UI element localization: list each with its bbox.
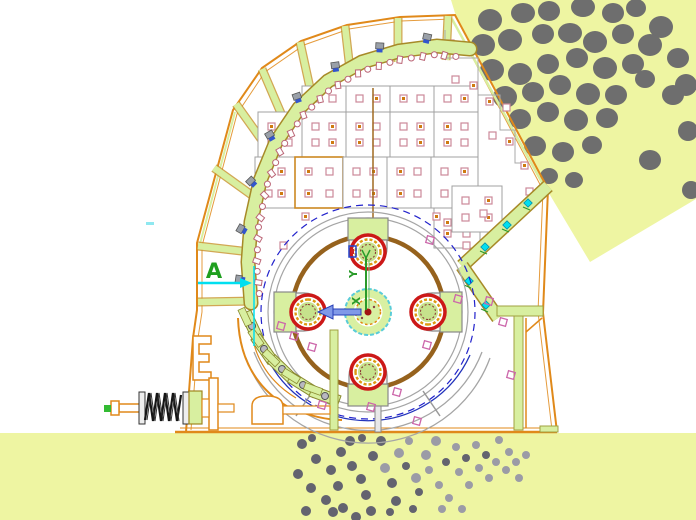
- discharge-particle: [326, 465, 336, 475]
- feed-rock: [532, 24, 554, 44]
- band-scallop: [345, 76, 351, 82]
- discharge-particle: [306, 483, 316, 493]
- discharge-particle: [431, 436, 441, 446]
- discharge-particle: [421, 450, 431, 460]
- panel-bolt-square: [353, 190, 360, 197]
- discharge-particle: [472, 441, 480, 449]
- discharge-particle: [512, 458, 520, 466]
- panel-bolt-square: [400, 123, 407, 130]
- discharge-particle: [297, 439, 307, 449]
- discharge-particle: [358, 434, 366, 442]
- band-scallop: [408, 55, 414, 61]
- band-scallop: [259, 203, 265, 209]
- feed-rock: [635, 70, 655, 88]
- discharge-particle: [321, 495, 331, 505]
- panel-bolt-square: [441, 168, 448, 175]
- hammer-assembly: [348, 218, 388, 269]
- panel-bolt-square: [461, 139, 468, 146]
- discharge-particle: [386, 508, 394, 516]
- feed-rock: [538, 1, 560, 21]
- band-notch: [254, 279, 262, 285]
- panel-bolt-square: [326, 168, 333, 175]
- band-notch: [397, 56, 403, 64]
- liner-panel: [452, 186, 502, 232]
- discharge-particle: [482, 451, 490, 459]
- discharge-particle: [301, 506, 311, 516]
- discharge-particle: [435, 481, 443, 489]
- liner-panel: [434, 86, 478, 112]
- feed-rock: [508, 63, 532, 85]
- panel-bolt-square: [312, 139, 319, 146]
- discharge-particle: [438, 505, 446, 513]
- band-scallop: [264, 181, 270, 187]
- discharge-particle: [328, 507, 338, 517]
- discharge-particle: [356, 474, 366, 484]
- feed-rock: [593, 57, 617, 79]
- section-marker-label: A: [206, 259, 223, 283]
- feed-rock: [511, 3, 535, 23]
- discharge-particle: [376, 436, 386, 446]
- feed-rock: [537, 102, 559, 122]
- discharge-particle: [502, 466, 510, 474]
- discharge-particle: [415, 488, 423, 496]
- discharge-particle: [445, 494, 453, 502]
- feed-rock: [667, 48, 689, 68]
- discharge-particle: [366, 506, 376, 516]
- band-scallop: [294, 121, 300, 127]
- panel-bolt-square: [400, 139, 407, 146]
- discharge-particle: [425, 466, 433, 474]
- panel-bolt-square: [353, 168, 360, 175]
- left-bracket: [193, 336, 211, 380]
- discharge-particle: [409, 505, 417, 513]
- feed-rock: [498, 29, 522, 51]
- discharge-particle: [391, 496, 401, 506]
- band-notch: [317, 95, 323, 103]
- feed-rock: [583, 31, 607, 53]
- liner-panel: [346, 112, 390, 157]
- feed-rock: [549, 75, 571, 95]
- discharge-particle: [368, 451, 378, 461]
- discharge-particle: [515, 474, 523, 482]
- band-notch: [335, 81, 341, 89]
- discharge-particle: [492, 458, 500, 466]
- liner-panel: [295, 157, 343, 208]
- liner-panel: [434, 112, 478, 157]
- bolt-square: [489, 132, 496, 139]
- discharge-particle: [387, 478, 397, 488]
- band-scallop: [309, 104, 315, 110]
- discharge-particle: [338, 503, 348, 513]
- panel-bolt-square: [441, 190, 448, 197]
- band-notch: [376, 62, 381, 69]
- discharge-particle: [411, 473, 421, 483]
- discharge-particle: [380, 463, 390, 473]
- panel-bolt-square: [312, 123, 319, 130]
- bolt-square: [463, 242, 470, 249]
- discharge-particle: [311, 454, 321, 464]
- band-scallop: [254, 247, 260, 253]
- discharge-particle: [336, 447, 346, 457]
- band-scallop: [282, 140, 288, 146]
- liner-panel: [343, 157, 387, 208]
- feed-rock: [638, 34, 662, 56]
- discharge-particle: [465, 481, 473, 489]
- discharge-particle: [452, 443, 460, 451]
- discharge-particle: [458, 505, 466, 513]
- bolt-square: [503, 104, 510, 111]
- feed-rock: [566, 48, 588, 68]
- feed-rock: [565, 172, 583, 188]
- feed-rock: [552, 142, 574, 162]
- feed-rock: [478, 9, 502, 31]
- panel-bolt-square: [462, 197, 469, 204]
- discharge-particle: [522, 451, 530, 459]
- discharge-particle: [308, 434, 316, 442]
- bolt-square: [452, 76, 459, 83]
- discharge-particle: [505, 448, 513, 456]
- feed-rock: [558, 23, 582, 43]
- discharge-particle: [495, 436, 503, 444]
- panel-bolt-square: [356, 95, 363, 102]
- spring-rod-left: [119, 404, 141, 412]
- feed-rock: [582, 136, 602, 154]
- feed-rock: [537, 54, 559, 74]
- panel-bolt-square: [444, 95, 451, 102]
- band-scallop: [273, 160, 279, 166]
- panel-bolt-square: [373, 139, 380, 146]
- panel-bolt-square: [462, 214, 469, 221]
- band-notch: [355, 70, 360, 77]
- panel-bolt-square: [417, 95, 424, 102]
- feed-rock: [639, 150, 661, 170]
- discharge-particle: [293, 469, 303, 479]
- feed-rock: [602, 3, 624, 23]
- hammer-assembly: [348, 355, 388, 406]
- panel-bolt-square: [414, 190, 421, 197]
- feed-rock: [524, 136, 546, 156]
- feed-rock: [605, 85, 627, 105]
- discharge-particle: [462, 454, 470, 462]
- panel-bolt-square: [373, 123, 380, 130]
- feed-rock: [522, 82, 544, 102]
- band-scallop: [431, 52, 437, 58]
- band-scallop: [256, 291, 262, 297]
- discharge-particle: [475, 464, 483, 472]
- panel-bolt-square: [461, 123, 468, 130]
- feed-rock: [612, 24, 634, 44]
- band-scallop: [255, 224, 261, 230]
- band-scallop: [453, 53, 459, 59]
- rod-green-tip: [104, 405, 111, 412]
- axis-y-label: Y: [347, 269, 360, 279]
- discharge-particle: [394, 448, 404, 458]
- feed-rock: [596, 108, 618, 128]
- discharge-particle: [485, 474, 493, 482]
- discharge-particle: [361, 490, 371, 500]
- liner-panel: [302, 112, 346, 157]
- tension-rod-clevis: [252, 396, 283, 424]
- band-scallop: [387, 59, 393, 65]
- bolt-square: [480, 210, 487, 217]
- band-scallop: [254, 268, 260, 274]
- discharge-particle: [402, 462, 410, 470]
- crusher-section-drawing: Y X A: [0, 0, 696, 520]
- axis-x-label: X: [350, 296, 363, 305]
- band-notch: [420, 52, 426, 60]
- discharge-particle: [405, 437, 413, 445]
- liner-panel: [390, 86, 434, 112]
- liner-panel: [390, 112, 434, 157]
- discharge-particle: [333, 481, 343, 491]
- feed-rock: [576, 83, 600, 105]
- spring-mount-block: [189, 391, 202, 424]
- liner-panel: [346, 86, 390, 112]
- panel-bolt-square: [414, 168, 421, 175]
- feed-rock: [564, 109, 588, 131]
- band-scallop: [325, 88, 331, 94]
- bottom-hammer-stem: [375, 404, 381, 432]
- discharge-particle: [347, 461, 357, 471]
- band-scallop: [365, 66, 371, 72]
- panel-bolt-square: [326, 190, 333, 197]
- ground-region: [0, 433, 696, 520]
- feed-rock: [662, 85, 684, 105]
- liner-panel: [387, 157, 431, 208]
- discharge-particle: [455, 468, 463, 476]
- panel-bolt-square: [329, 95, 336, 102]
- discharge-particle: [442, 458, 450, 466]
